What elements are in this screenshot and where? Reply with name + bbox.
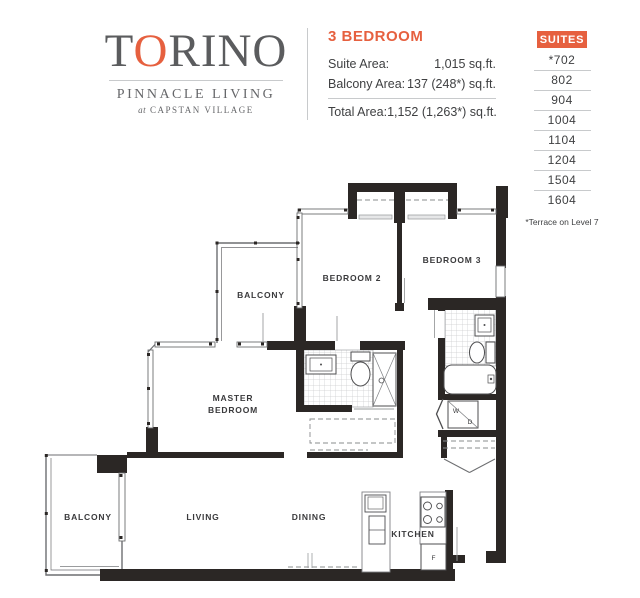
label-master-line1: MASTER: [213, 393, 254, 403]
label-living: LIVING: [186, 512, 219, 522]
washer-label: W: [453, 408, 460, 415]
toilet-icon: [351, 352, 370, 361]
label-bedroom-2: BEDROOM 2: [323, 273, 382, 283]
floorplan-page: TORINO PINNACLE LIVING at CAPSTAN VILLAG…: [0, 0, 640, 598]
label-kitchen: KITCHEN: [391, 529, 434, 539]
floorplan-drawing: W D F: [0, 0, 640, 598]
label-balcony-lower: BALCONY: [64, 512, 112, 522]
room-labels: BALCONY BEDROOM 2 BEDROOM 3 MASTER BEDRO…: [64, 255, 481, 539]
label-bedroom-3: BEDROOM 3: [423, 255, 482, 265]
fridge-label: F: [432, 555, 436, 562]
toilet-icon: [486, 342, 495, 363]
label-balcony-upper: BALCONY: [237, 290, 285, 300]
washer-dryer: W D: [437, 399, 479, 429]
label-dining: DINING: [292, 512, 327, 522]
dryer-label: D: [468, 419, 473, 426]
label-master-line2: BEDROOM: [208, 405, 258, 415]
